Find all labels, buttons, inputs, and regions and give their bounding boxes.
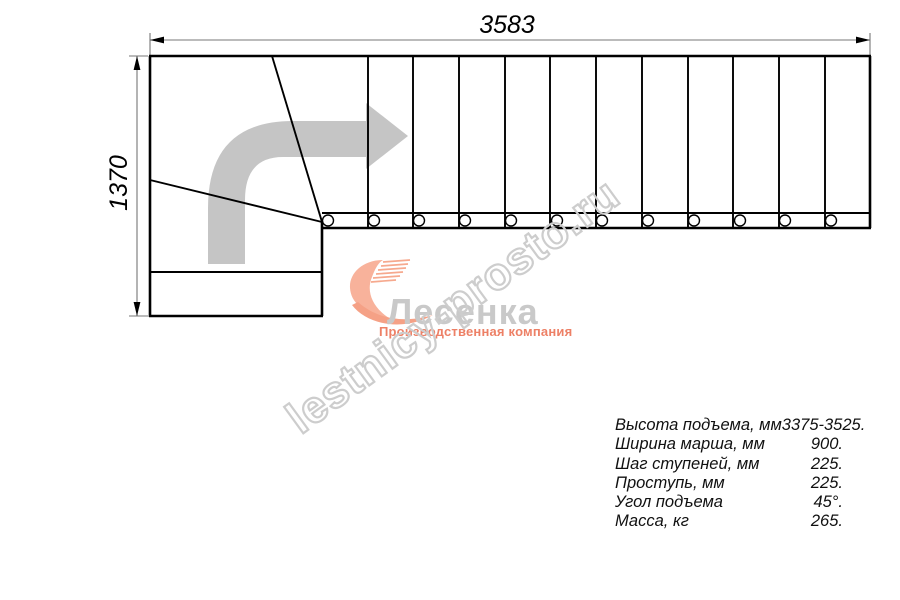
spec-value: 265. <box>811 512 843 531</box>
height-dimension-label: 1370 <box>104 147 134 219</box>
direction-arrow-icon <box>208 103 408 264</box>
spec-row: Угол подъема 45°. <box>615 493 843 512</box>
drawing-canvas: 3583 1370 Лесенка Производственная компа… <box>0 0 900 600</box>
spec-value: 3375-3525. <box>782 416 866 435</box>
spec-row: Ширина марша, мм 900. <box>615 435 843 454</box>
spec-value: 225. <box>811 455 843 474</box>
spec-label: Угол подъема <box>615 493 723 512</box>
spec-label: Ширина марша, мм <box>615 435 765 454</box>
spec-value: 45°. <box>813 493 843 512</box>
spec-row: Проступь, мм 225. <box>615 474 843 493</box>
spec-row: Масса, кг 265. <box>615 512 843 531</box>
spec-label: Проступь, мм <box>615 474 725 493</box>
spec-value: 225. <box>811 474 843 493</box>
spec-value: 900. <box>811 435 843 454</box>
spec-row: Шаг ступеней, мм 225. <box>615 455 843 474</box>
spec-row: Высота подъема, мм 3375-3525. <box>615 416 843 435</box>
spec-label: Шаг ступеней, мм <box>615 455 759 474</box>
spec-label: Масса, кг <box>615 512 689 531</box>
spec-label: Высота подъема, мм <box>615 416 782 435</box>
width-dimension-label: 3583 <box>471 11 543 39</box>
spec-table: Высота подъема, мм 3375-3525. Ширина мар… <box>615 416 843 532</box>
